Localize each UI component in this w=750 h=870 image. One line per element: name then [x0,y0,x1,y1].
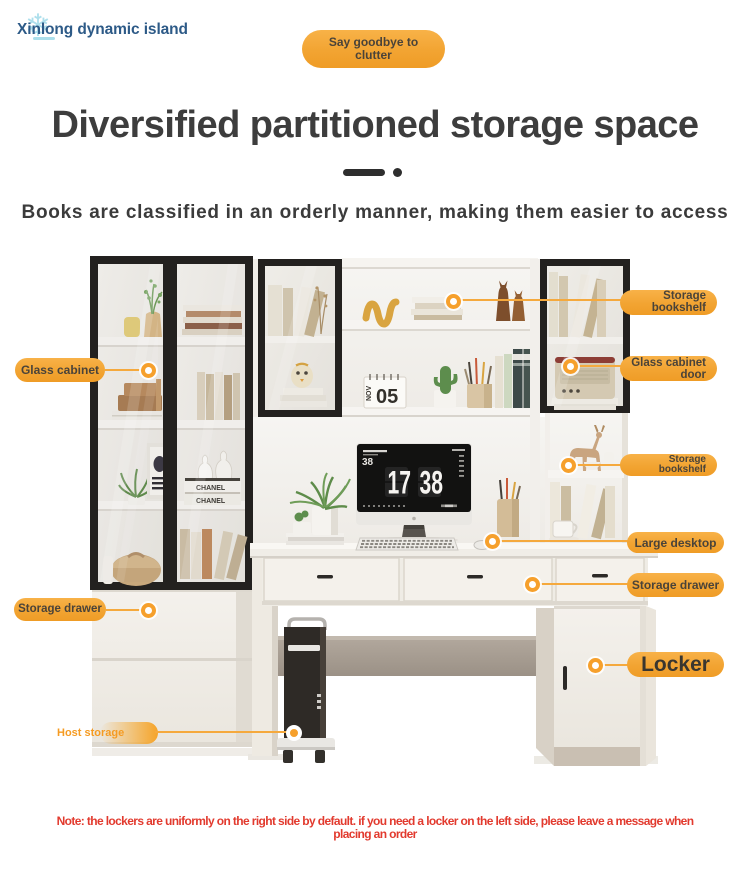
svg-text:NOV: NOV [366,386,373,402]
svg-text:38: 38 [420,464,443,501]
svg-text:38: 38 [362,457,374,468]
svg-text:17: 17 [388,464,411,501]
svg-text:05: 05 [376,386,398,408]
